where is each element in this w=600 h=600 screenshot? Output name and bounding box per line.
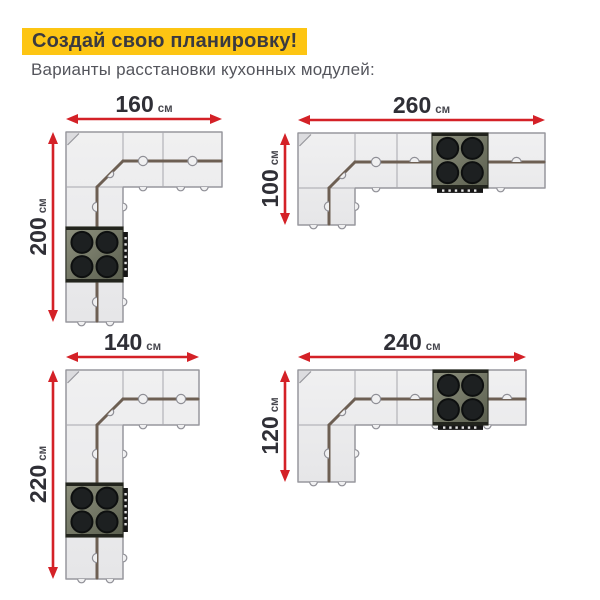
height-arrow-head-bottom: [280, 470, 290, 482]
cabinet-outline: [298, 133, 545, 225]
kitchen-plan-svg: 140см220см: [26, 328, 217, 591]
kitchen-drawing: [66, 370, 199, 583]
height-dimension-value: 220: [26, 465, 51, 503]
stove-knob: [124, 237, 126, 239]
width-dimension-value: 140: [104, 329, 142, 355]
stove-knob: [124, 523, 126, 525]
width-dimension-label: 240см: [383, 329, 440, 355]
width-dimension-value: 240: [383, 329, 421, 355]
stove-cooktop: [66, 483, 128, 537]
burner-4: [462, 399, 483, 420]
height-arrow-head-bottom: [48, 567, 58, 579]
page-title: Создай свою планировку!: [32, 30, 297, 53]
height-arrow-head-top: [280, 370, 290, 382]
width-arrow-head-left: [298, 352, 310, 362]
stove-knob: [461, 189, 463, 191]
width-arrow-head-left: [298, 115, 310, 125]
stove-knob: [124, 262, 126, 264]
width-dimension-value: 160: [115, 91, 153, 117]
stove-knob: [124, 249, 126, 251]
stove-knob: [468, 189, 470, 191]
burner-3: [71, 511, 92, 532]
height-dimension-value: 200: [26, 217, 51, 255]
stove-knob: [455, 189, 457, 191]
burner-3: [437, 162, 458, 183]
height-dimension-label: 220см: [26, 446, 51, 503]
burner-3: [71, 256, 92, 277]
stove-knob: [124, 505, 126, 507]
stove-knob: [124, 243, 126, 245]
burner-4: [462, 162, 483, 183]
page-title-highlight: Создай свою планировку!: [22, 28, 307, 55]
stove-knob: [442, 189, 444, 191]
height-arrow-head-bottom: [48, 310, 58, 322]
height-dimension-unit: см: [269, 150, 281, 165]
height-arrow-head-top: [280, 133, 290, 145]
width-arrow-head-right: [533, 115, 545, 125]
burner-2: [97, 488, 118, 509]
width-dimension-unit: см: [435, 104, 450, 116]
width-dimension-label: 160см: [115, 91, 172, 117]
stove-knob: [124, 517, 126, 519]
width-dimension-value: 260: [393, 92, 431, 118]
burner-4: [97, 511, 118, 532]
width-arrow-head-right: [514, 352, 526, 362]
width-dimension-unit: см: [426, 341, 441, 353]
width-arrow-head-left: [66, 352, 78, 362]
width-arrow-head-right: [187, 352, 199, 362]
width-dimension-unit: см: [158, 103, 173, 115]
burner-1: [437, 138, 458, 159]
burner-1: [438, 375, 459, 396]
height-dimension-unit: см: [37, 198, 49, 213]
stove-knob: [462, 426, 464, 428]
kitchen-plan-svg: 260см100см: [258, 91, 563, 237]
cabinet-outline: [298, 370, 526, 482]
kitchen-layout-240x120: 240см120см: [258, 328, 544, 499]
kitchen-drawing: [298, 133, 545, 229]
width-dimension-unit: см: [146, 341, 161, 353]
burner-1: [71, 232, 92, 253]
width-dimension-label: 260см: [393, 92, 450, 118]
height-dimension-unit: см: [37, 446, 49, 461]
height-dimension-label: 200см: [26, 198, 51, 255]
width-arrow-head-right: [210, 114, 222, 124]
height-dimension-label: 100см: [258, 150, 283, 207]
height-dimension-label: 120см: [258, 397, 283, 454]
kitchen-drawing: [66, 132, 222, 326]
burner-4: [97, 256, 118, 277]
stove-cooktop: [433, 370, 488, 430]
height-dimension-value: 120: [258, 416, 283, 454]
kitchen-plan-svg: 240см120см: [258, 328, 544, 494]
stove-knob: [448, 189, 450, 191]
page-subtitle: Варианты расстановки кухонных модулей:: [31, 60, 375, 80]
height-dimension-value: 100: [258, 169, 283, 207]
stove-knob: [474, 426, 476, 428]
burner-1: [71, 488, 92, 509]
height-arrow-head-top: [48, 132, 58, 144]
stove-cooktop: [66, 227, 128, 282]
burner-2: [97, 232, 118, 253]
stove-knob: [468, 426, 470, 428]
stove-knob: [124, 256, 126, 258]
burner-2: [462, 138, 483, 159]
height-arrow-head-bottom: [280, 213, 290, 225]
infographic-canvas: Создай свою планировку! Варианты расстан…: [0, 0, 600, 600]
width-arrow-head-left: [66, 114, 78, 124]
stove-knob: [449, 426, 451, 428]
stove-knob: [124, 511, 126, 513]
burner-2: [462, 375, 483, 396]
kitchen-layout-260x100: 260см100см: [258, 91, 563, 242]
kitchen-layout-160x200: 160см200см: [26, 90, 240, 339]
burner-3: [438, 399, 459, 420]
height-dimension-unit: см: [269, 397, 281, 412]
stove-cooktop: [432, 133, 488, 193]
stove-knob: [124, 493, 126, 495]
kitchen-layout-140x220: 140см220см: [26, 328, 217, 596]
stove-knob: [124, 268, 126, 270]
stove-knob: [474, 189, 476, 191]
height-arrow-head-top: [48, 370, 58, 382]
stove-knob: [124, 499, 126, 501]
kitchen-drawing: [298, 370, 526, 486]
stove-knob: [443, 426, 445, 428]
stove-knob: [455, 426, 457, 428]
width-dimension-label: 140см: [104, 329, 161, 355]
kitchen-plan-svg: 160см200см: [26, 90, 240, 334]
